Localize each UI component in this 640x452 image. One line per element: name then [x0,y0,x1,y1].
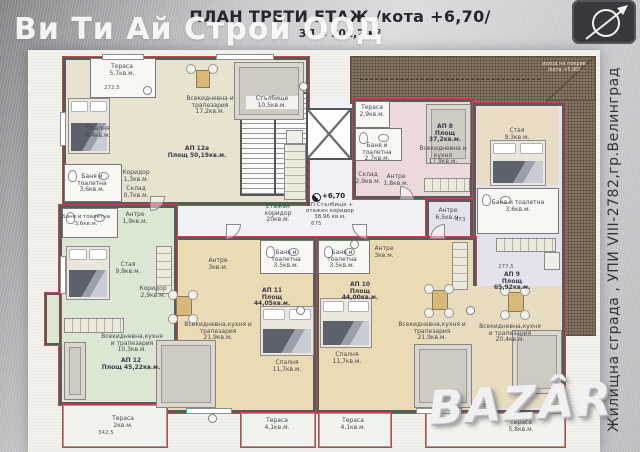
symbol-circle [299,82,308,91]
apartment-area: Площ 45,22кв.м. [100,365,162,372]
north-arrow-badge [572,0,636,44]
room-area: 3кв.м. [204,265,232,272]
label-ap12a-bedroom: Спалня 8,4кв.м. [76,126,120,139]
label-ap8-bath: Баня и тоалетна 2,7кв.м. [354,143,400,163]
window [216,54,274,60]
label-ap10-name: АП 10 Площ 44,00кв.м. [332,282,388,302]
label-ap10-living: Всекидневна,кухня и трапезария 21,9кв.м. [398,322,466,342]
label-ap10-bath: Баня и тоалетна 3,5кв.м. [318,250,366,270]
room-area: 10,5кв.м. [246,103,298,110]
apartment-area: Площ 50,19кв.м. [166,153,228,160]
company-watermark: Ви Ти Ай Строй ООД [14,12,384,47]
room-area: 11,7кв.м. [326,359,368,366]
label-ap12a-corridor: Коридор 1,3кв.м. [118,170,154,183]
room-area: 1,3кв.м. [118,177,154,184]
kitchen-counter [424,178,470,192]
room-area: 9,9кв.м. [108,269,148,276]
apartment-area: Площ 65,92кв.м. [484,279,540,292]
label-stairs: Стълбище 10,5кв.м. [246,96,298,109]
level-marker-icon [312,193,321,202]
chair [208,64,218,74]
label-ap8-living: Всекидневна и кухня 17,9кв.м. [416,146,470,166]
room-area: 4,1кв.м. [252,425,302,432]
apartment-area: Площ 44,05кв.м. [244,295,300,308]
dimension: 675 [311,221,322,227]
label-ap9-antre: Антре 6,5кв.м. [428,208,468,221]
summary-line: 38,96 кв.м. [304,214,356,220]
label-ap12-bath: Баня и тоалетна 3,6кв.м. [60,214,112,227]
label-ap10-bedroom: Спалня 11,7кв.м. [326,352,368,365]
label-ap11-bath: Баня и тоалетна 3,5кв.м. [262,250,310,270]
symbol-circle [143,86,152,95]
label-core-summary: ВП:Стълбище + етажен коридор 38,96 кв.м. [304,202,356,220]
room-area: 9,3кв.м. [494,135,540,142]
room-area: 17,9кв.м. [416,159,470,166]
label-ap12a-storage: Склад 0,7кв.м. [118,186,154,199]
label-ap9-living: Всекидневна,кухня и трапезария 20,4кв.м. [478,324,542,344]
label-ap8-name: АП 8 Площ 37,2кв.м. [420,124,470,144]
chair [424,284,434,294]
elevator-x-icon [308,110,350,158]
label-corridor: Етажен коридор 20кв.м. [254,204,302,224]
room-area: 1,8кв.м. [382,181,410,188]
room-name: Баня и тоалетна [60,214,112,221]
room-area: 8,4кв.м. [76,133,120,140]
kitchen-counter [496,238,556,252]
label-ap12a-name: АП 12а Площ 50,19кв.м. [166,146,228,159]
label-ap11-bedroom: Спалня 11,7кв.м. [266,360,308,373]
chair [520,310,530,320]
room-area: 0,7кв.м. [118,193,154,200]
room-area: 21,9кв.м. [398,335,466,342]
kitchen-counter [452,242,468,290]
label-ap12-living: Всекидневна,кухня и трапезария 10,3кв.м. [100,334,164,354]
symbol-circle [466,306,475,315]
chair [168,314,178,324]
label-ap12-room: Стая 9,9кв.м. [108,262,148,275]
label-ap9-name: АП 9 Площ 65,92кв.м. [484,272,540,292]
roof-label-line2: /кота +5,90/ [548,67,580,73]
room-area: 11,7кв.м. [266,367,308,374]
label-ap12-corridor: Коридор 2,9кв.м. [134,286,172,299]
room-area: 5,7кв.м. [96,71,148,78]
symbol-circle [208,414,217,423]
kitchen-counter [284,144,306,200]
label-ap12a-bath: Баня и тоалетна 3,6кв.м. [66,174,118,194]
room-area: 10,3кв.м. [100,347,164,354]
window [60,112,66,146]
roof-label: изход на покрив /кота +5,90/ [536,61,592,73]
bed [260,306,314,356]
room-area: 17,2кв.м. [174,109,246,116]
dining-table [196,70,210,88]
label-ap10-terrace: Тераса 4,1кв.м. [328,418,378,431]
room-area: 3,6кв.м. [60,221,112,228]
room-area: 2,9кв.м. [134,293,172,300]
label-ap12a-terrace: Тераса 5,7кв.м. [96,64,148,77]
room-area: 2,7кв.м. [354,156,400,163]
room-area: 21,9кв.м. [184,335,252,342]
chair [500,310,510,320]
apartment-area: Площ 44,00кв.м. [332,289,388,302]
sofa [156,340,216,408]
apartment-area: Площ 37,2кв.м. [420,131,470,144]
room-area: 3,6кв.м. [490,207,546,214]
room-area: 20,4кв.м. [478,337,542,344]
room-area: 3,5кв.м. [318,263,366,270]
level-marker-text: +6,70 [322,192,345,200]
label-ap8-antre: Антре 1,8кв.м. [382,174,410,187]
dimension: 342,5 [98,430,114,436]
room-area: 2,9кв.м. [354,179,382,186]
chair [424,308,434,318]
window [60,256,66,294]
label-ap12-terrace: Тераса 2кв.м. [98,416,148,429]
room-area: 20кв.м. [254,217,302,224]
fridge [544,252,560,270]
elevator [306,108,352,160]
kitchen-counter [64,318,124,333]
north-arrow-icon [576,2,632,42]
symbol-circle [350,240,359,249]
bed [66,246,110,300]
dimension: 272,5 [104,85,120,91]
bed [320,298,372,348]
label-ap10-antre: Антре 3кв.м. [370,246,398,259]
bazar-watermark: BAZÂR [427,371,615,435]
label-ap11-terrace: Тераса 4,1кв.м. [252,418,302,431]
chair [186,64,196,74]
label-ap9-room: Стая 9,3кв.м. [494,128,540,141]
window [102,54,144,60]
floor-plan-photo: изход на покрив /кота +5,90/ Тераса 5,7к… [0,0,640,452]
room-area: 6,5кв.м. [428,215,468,222]
label-ap11-name: АП 11 Площ 44,05кв.м. [244,288,300,308]
label-ap8-storage: Склад 2,9кв.м. [354,172,382,185]
room-area: 3,6кв.м. [66,187,118,194]
fridge [286,130,303,144]
label-ap9-bath: Баня и тоалетна 3,6кв.м. [490,200,546,213]
room-area: 1,9кв.м. [118,219,152,226]
sink [378,134,389,142]
window [186,408,232,414]
label-ap8-terrace: Тераса 2,9кв.м. [354,105,390,118]
ap12-bay-window [44,292,62,346]
label-ap12-antre: Антре 1,9кв.м. [118,212,152,225]
dimension: 277,5 [498,264,514,270]
bed [490,140,546,186]
roof-ridge-line [360,79,540,80]
label-ap12a-living: Всекидневна и трапезария 17,2кв.м. [174,96,246,116]
chair [444,284,454,294]
room-area: 3,5кв.м. [262,263,310,270]
room-area: 2,9кв.м. [354,112,390,119]
label-ap11-antre: Антре 3кв.м. [204,258,232,271]
room-area: 2кв.м. [98,423,148,430]
sofa [64,342,86,400]
room-area: 4,1кв.м. [328,425,378,432]
chair [188,290,198,300]
room-area: 3кв.м. [370,253,398,260]
label-ap11-living: Всекидневна,кухня и трапезария 21,9кв.м. [184,322,252,342]
chair [444,308,454,318]
label-ap12-name: АП 12 Площ 45,22кв.м. [100,358,162,371]
